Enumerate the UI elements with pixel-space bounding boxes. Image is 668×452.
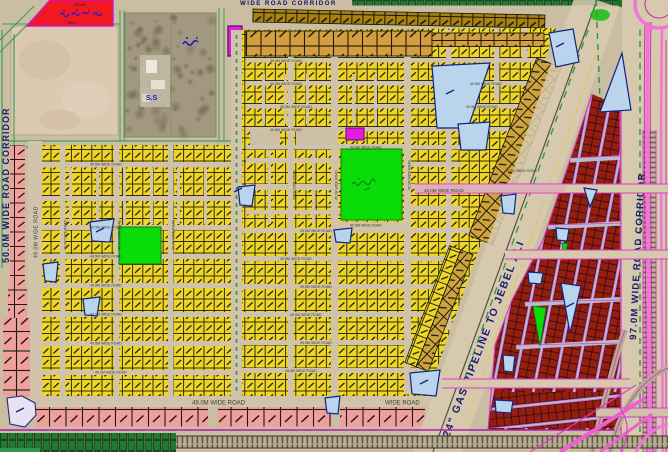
- svg-text:45.0M WIDE ROAD: 45.0M WIDE ROAD: [64, 219, 68, 250]
- svg-text:49.5M WIDE ROAD: 49.5M WIDE ROAD: [350, 145, 382, 149]
- svg-text:WIDE ROAD: WIDE ROAD: [385, 401, 420, 407]
- svg-text:49.5M WIDE ROAD: 49.5M WIDE ROAD: [95, 370, 127, 374]
- svg-text:45.0M WIDE ROAD: 45.0M WIDE ROAD: [118, 219, 122, 250]
- svg-text:49.5M WIDE ROAD: 49.5M WIDE ROAD: [470, 82, 502, 86]
- svg-text:49.5M WIDE ROAD: 49.5M WIDE ROAD: [280, 257, 312, 261]
- svg-text:49.0M WIDE ROAD: 49.0M WIDE ROAD: [424, 188, 465, 193]
- svg-text:49.5M WIDE ROAD: 49.5M WIDE ROAD: [300, 285, 332, 289]
- svg-text:49.5M WIDE ROAD: 49.5M WIDE ROAD: [270, 128, 302, 132]
- svg-text:S.S: S.S: [146, 95, 158, 102]
- svg-text:45.0M WIDE ROAD: 45.0M WIDE ROAD: [172, 219, 176, 250]
- svg-text:49.5M WIDE ROAD: 49.5M WIDE ROAD: [90, 254, 122, 258]
- svg-text:49.5M WIDE ROAD: 49.5M WIDE ROAD: [300, 341, 332, 345]
- svg-text:160.0: 160.0: [67, 21, 76, 25]
- svg-text:49.5M WIDE ROAD: 49.5M WIDE ROAD: [300, 229, 332, 233]
- svg-text:49.5M WIDE ROAD: 49.5M WIDE ROAD: [466, 105, 498, 109]
- svg-text:49.5M WIDE ROAD: 49.5M WIDE ROAD: [290, 313, 322, 317]
- svg-text:45.0M WIDE ROAD: 45.0M WIDE ROAD: [335, 169, 339, 200]
- svg-text:45.0M WIDE ROAD: 45.0M WIDE ROAD: [293, 169, 297, 200]
- svg-text:49.0M WIDE ROAD: 49.0M WIDE ROAD: [192, 401, 246, 407]
- svg-text:45.0M WIDE ROAD: 45.0M WIDE ROAD: [408, 159, 412, 190]
- svg-text:49.5M WIDE ROAD: 49.5M WIDE ROAD: [270, 59, 302, 63]
- svg-text:50.0M WIDE ROAD CORRIDOR: 50.0M WIDE ROAD CORRIDOR: [1, 107, 11, 263]
- svg-text:49.5M WIDE ROAD: 49.5M WIDE ROAD: [285, 369, 317, 373]
- svg-text:49.5M WIDE ROAD: 49.5M WIDE ROAD: [350, 223, 382, 227]
- svg-text:49.5M WIDE ROAD: 49.5M WIDE ROAD: [280, 105, 312, 109]
- svg-text:49.5M WIDE ROAD: 49.5M WIDE ROAD: [90, 341, 122, 345]
- svg-text:49.5M WIDE ROAD: 49.5M WIDE ROAD: [90, 162, 122, 166]
- svg-text:49.0M WIDE ROAD: 49.0M WIDE ROAD: [34, 206, 40, 258]
- svg-text:110.0M: 110.0M: [74, 3, 85, 7]
- svg-text:49.5M WIDE ROAD: 49.5M WIDE ROAD: [90, 312, 122, 316]
- svg-text:49.5M WIDE ROAD: 49.5M WIDE ROAD: [270, 82, 302, 86]
- svg-text:49.5M WIDE ROAD: 49.5M WIDE ROAD: [90, 283, 122, 287]
- svg-text:49.5M WIDE ROAD: 49.5M WIDE ROAD: [505, 169, 537, 173]
- svg-text:WIDE ROAD CORRIDOR: WIDE ROAD CORRIDOR: [240, 0, 337, 7]
